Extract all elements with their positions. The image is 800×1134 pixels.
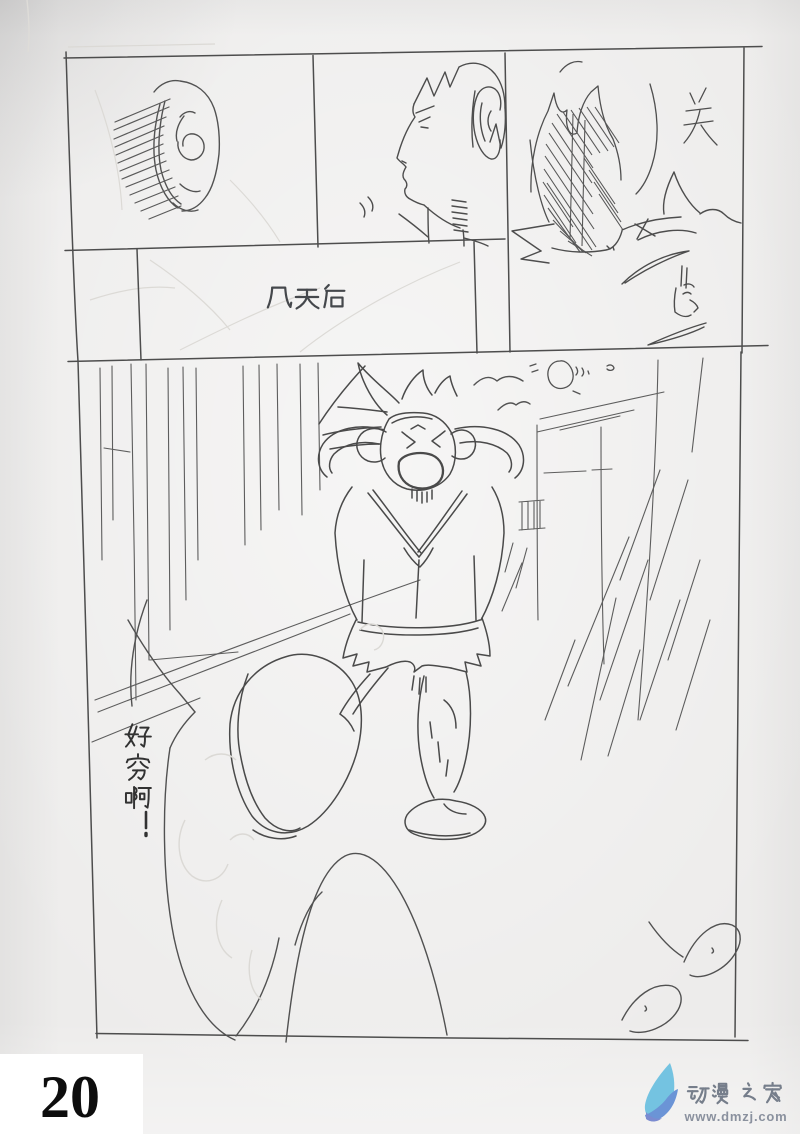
svg-text:20: 20 [40,1064,100,1130]
svg-text:www.dmzj.com: www.dmzj.com [683,1109,787,1124]
